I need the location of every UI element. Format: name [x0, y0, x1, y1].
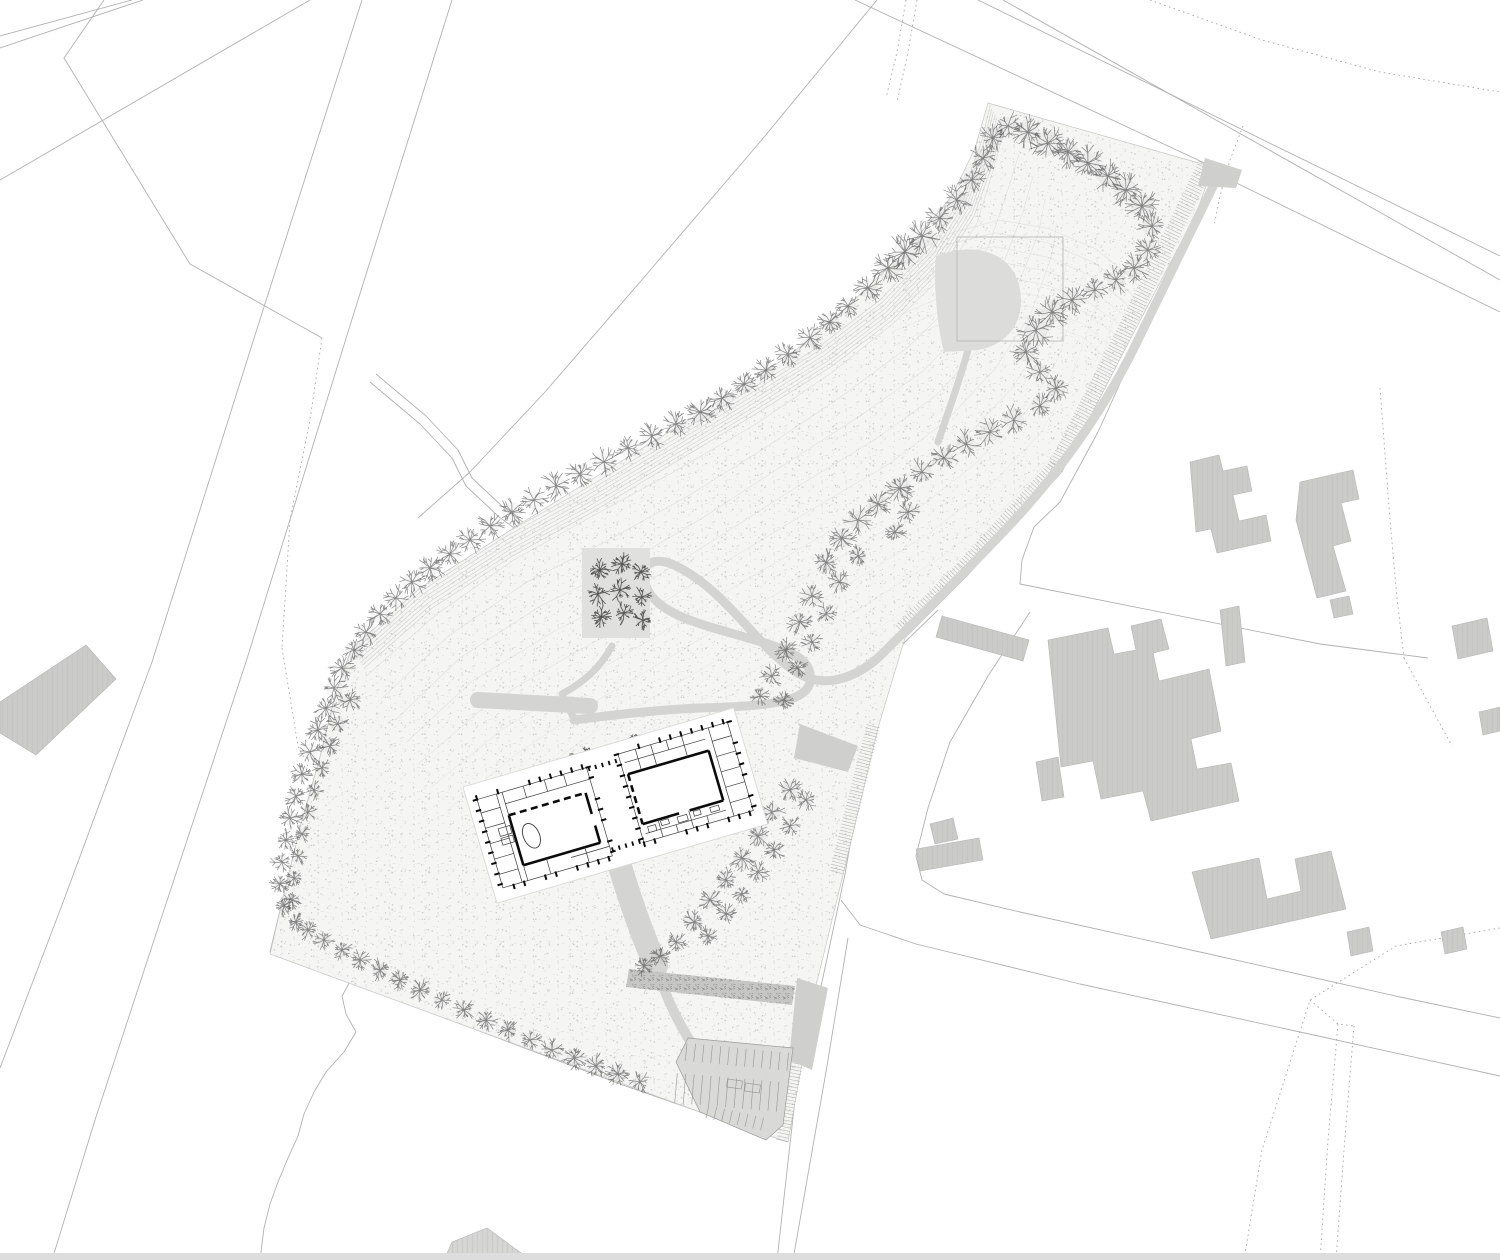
site-plan-drawing: [0, 0, 1500, 1260]
bottom-edge-strip: [0, 1253, 1500, 1260]
tree-glyph: [291, 763, 314, 785]
site-plan-canvas: [0, 0, 1500, 1260]
